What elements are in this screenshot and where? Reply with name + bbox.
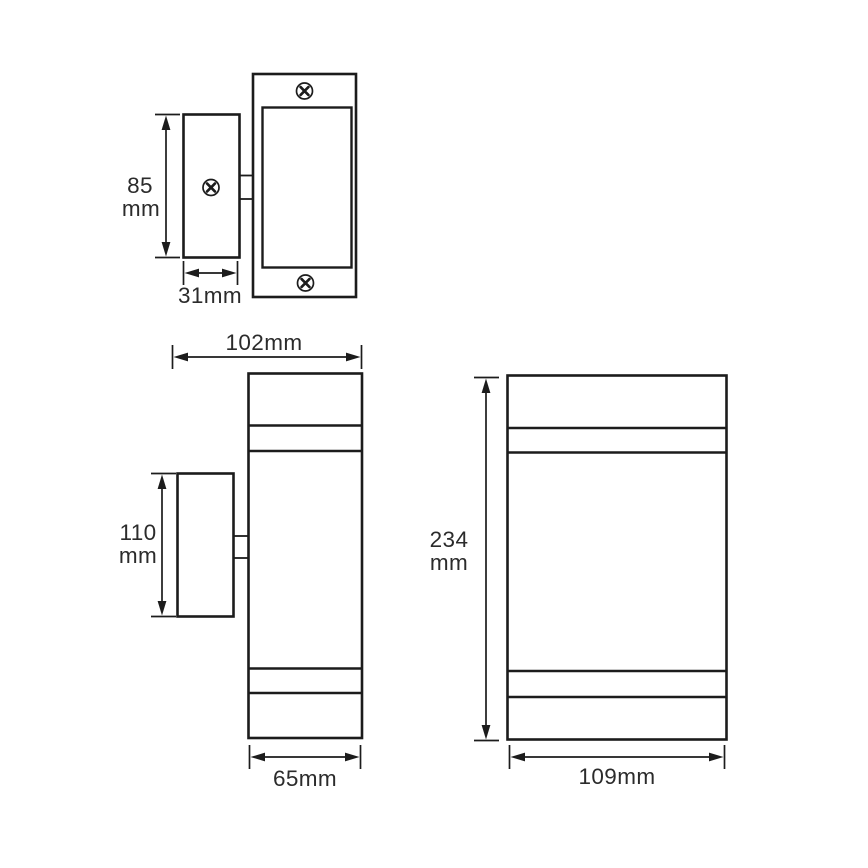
dimension-label: 109mm [578, 764, 655, 789]
screw-icon [297, 83, 313, 99]
view-side: 102mm 110 mm 65mm [119, 330, 362, 791]
fixture-body-side [249, 374, 363, 739]
technical-drawing-canvas: 85 mm 31mm [0, 0, 868, 868]
wall-plate-opening [263, 108, 352, 268]
technical-drawing-page: 85 mm 31mm [0, 0, 868, 868]
dimension-front-overall-height: 234 mm [430, 378, 499, 741]
dimension-side-bracket-height: 110 mm [119, 474, 176, 617]
view-plan: 85 mm 31mm [122, 74, 356, 308]
dimension-label: 65mm [273, 766, 337, 791]
dimension-side-overall-depth: 102mm [173, 330, 362, 369]
dimension-label: 31mm [178, 283, 242, 308]
screw-icon [298, 275, 314, 291]
dimension-side-body-width: 65mm [250, 745, 361, 791]
view-front: 234 mm 109mm [430, 376, 727, 790]
dimension-plan-bracket-height: 85 mm [122, 115, 180, 258]
dimension-label: 110 [119, 520, 156, 545]
fixture-body-front [508, 376, 727, 740]
dimension-label: 234 [430, 527, 469, 552]
dimension-label: 85 [127, 173, 153, 198]
bracket-outline-side [178, 474, 234, 617]
dimension-label: mm [122, 196, 160, 221]
dimension-label: 102mm [225, 330, 302, 355]
dimension-plan-bracket-depth: 31mm [178, 261, 242, 308]
screw-icon [203, 180, 219, 196]
dimension-front-overall-width: 109mm [510, 745, 725, 789]
dimension-label: mm [119, 543, 157, 568]
dimension-label: mm [430, 550, 468, 575]
